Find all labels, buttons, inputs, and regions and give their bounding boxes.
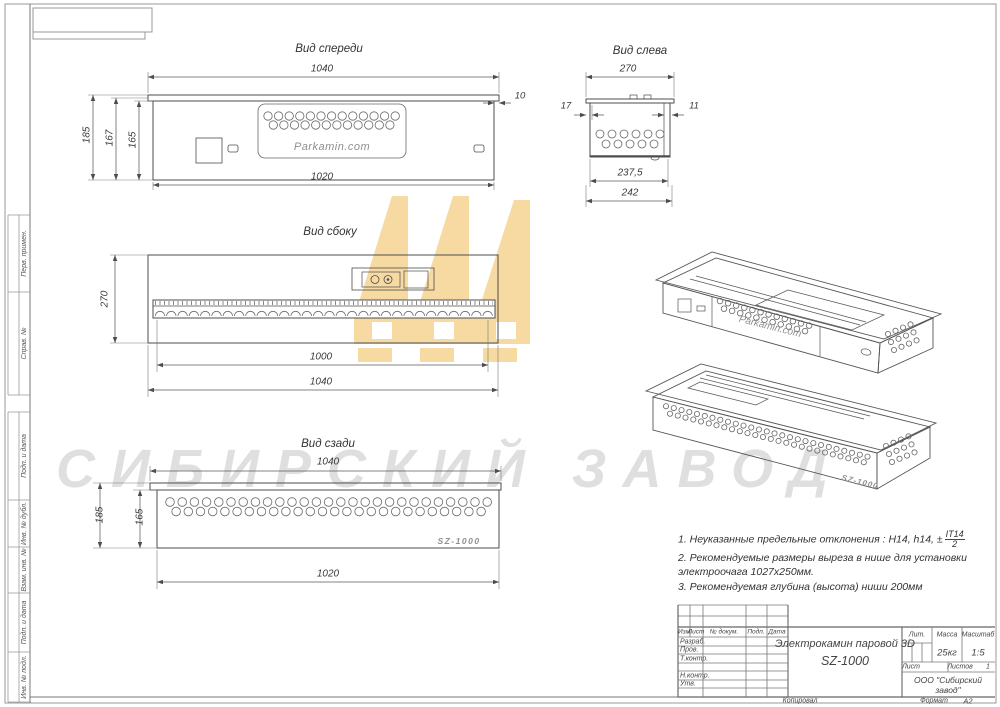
tb-copied-by: Копировал [783, 698, 818, 705]
tb-lit-label: Лит. [909, 632, 925, 639]
tb-format-value: А2 [963, 697, 972, 706]
side-view-dims [110, 255, 498, 397]
front-dim-185: 185 [82, 127, 93, 144]
margin-perv-primen: Перв. примен. [19, 215, 30, 292]
front-dim-10: 10 [515, 91, 526, 102]
side-dim-1040: 1040 [310, 377, 332, 388]
left-view-title: Вид слева [613, 45, 667, 57]
front-dim-1040: 1040 [311, 64, 333, 75]
tb-col-list: Лист [688, 629, 705, 636]
tb-col-sign: Подп. [747, 629, 764, 636]
tb-sheet-label: Лист [902, 664, 920, 671]
tb-doc-title: Электрокамин паровой 3D [775, 638, 915, 650]
side-dim-1000: 1000 [310, 352, 332, 363]
rear-dim-1040: 1040 [317, 457, 339, 468]
tb-doc-model: SZ-1000 [821, 654, 869, 668]
sheet-frame [5, 4, 996, 703]
note-1: 1. Неуказанные предельные отклонения : H… [678, 530, 992, 550]
front-dim-167: 167 [105, 130, 116, 147]
left-dim-270: 270 [620, 64, 637, 75]
rear-model-label: SZ-1000 [437, 536, 480, 546]
rear-dim-165: 165 [135, 509, 146, 526]
margin-podp-data-2: Подп. и дата [19, 593, 30, 652]
side-view-linework [148, 255, 498, 343]
notes-block: 1. Неуказанные предельные отклонения : H… [678, 530, 992, 597]
tb-company-line2: завод" [935, 685, 960, 695]
front-view-title: Вид спереди [295, 43, 363, 55]
tb-sheets-label: Листов [947, 664, 973, 671]
drawing-linework [0, 0, 1000, 707]
side-dim-270: 270 [100, 291, 111, 308]
margin-inv-podl: Инв. № подл. [19, 652, 30, 702]
side-view-title: Вид сбоку [303, 226, 356, 238]
tb-company-line1: ООО "Сибирский [914, 675, 982, 685]
left-view-linework [586, 95, 674, 160]
note-1-frac-den: 2 [945, 540, 965, 549]
left-dim-242: 242 [622, 188, 639, 199]
note-2: 2. Рекомендуемые размеры выреза в нише д… [678, 552, 992, 579]
note-1-text: 1. Неуказанные предельные отклонения : H… [678, 534, 943, 546]
tb-format-label: Формат [920, 698, 948, 705]
tb-mass-value: 25кг [937, 648, 957, 659]
front-view-linework [148, 95, 499, 180]
front-dim-1020: 1020 [311, 172, 333, 183]
note-3: 3. Рекомендуемая глубина (высота) ниши 2… [678, 581, 992, 595]
tb-row-ncontrol: Н.контр. [680, 672, 710, 679]
left-dim-237-5: 237,5 [617, 168, 642, 179]
rear-view-dims [93, 466, 501, 589]
tb-scale-label: Масштаб [962, 632, 995, 639]
note-1-fraction: IT142 [945, 530, 965, 550]
iso-rear-view-linework [646, 364, 936, 489]
tb-row-approved: Утв. [680, 681, 696, 688]
tb-col-doc: № докум. [710, 629, 739, 636]
iso-front-view-linework [656, 252, 941, 373]
rear-dim-1020: 1020 [317, 569, 339, 580]
tb-scale-value: 1:5 [971, 648, 984, 659]
tb-row-checked: Пров. [680, 647, 698, 654]
front-view-dims [88, 72, 511, 190]
rear-dim-185: 185 [95, 507, 106, 524]
tb-col-date: Дата [768, 629, 785, 636]
margin-sprav-no: Справ. № [19, 292, 30, 395]
margin-vzam-inv: Взам. инв. № [19, 547, 30, 593]
front-dim-165: 165 [128, 132, 139, 149]
tb-row-developed: Разраб. [680, 638, 705, 645]
left-dim-11: 11 [689, 101, 699, 112]
drawing-sheet: СИБИРСКИЙ ЗАВОД [0, 0, 1000, 707]
rear-view-title: Вид сзади [301, 438, 355, 450]
margin-inv-dubl: Инв. № дубл. [19, 500, 30, 547]
left-dim-17: 17 [561, 101, 572, 112]
tb-mass-label: Масса [937, 632, 958, 639]
tb-sheets-value: 1 [986, 664, 990, 671]
margin-podp-data-1: Подп. и дата [19, 412, 30, 500]
tb-row-tcontrol: Т.контр. [680, 655, 708, 662]
front-brand-label: Parkamin.com [294, 141, 370, 153]
